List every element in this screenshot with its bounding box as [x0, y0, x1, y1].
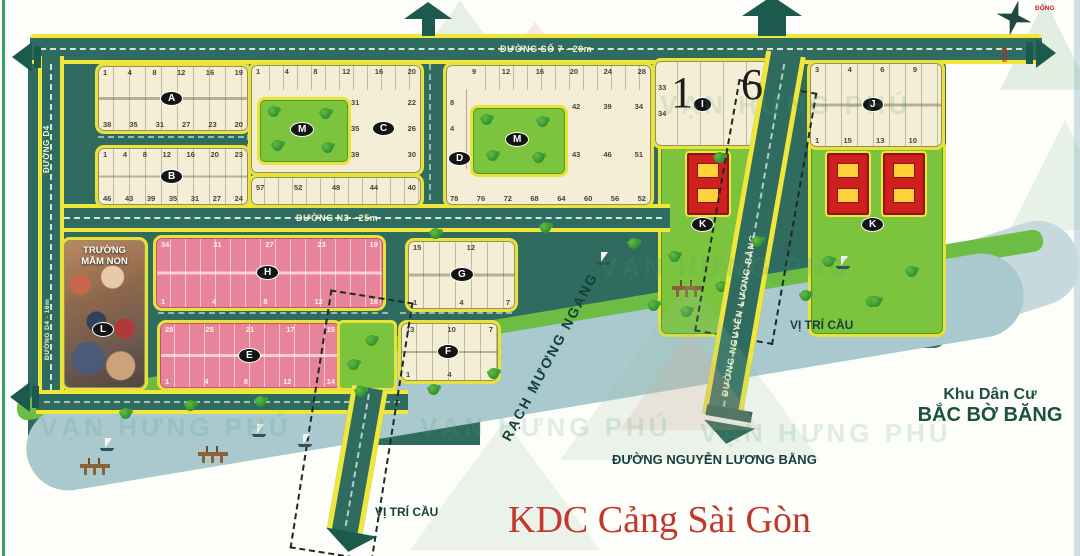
- plot-number: 4: [459, 299, 463, 307]
- plot-number: 12: [283, 378, 291, 386]
- tree-icon: [355, 386, 366, 397]
- plot-number: 31: [156, 121, 164, 129]
- plot-number: 22: [408, 99, 416, 107]
- block-m1-badge: M: [290, 122, 314, 137]
- plot-number: 16: [375, 68, 383, 76]
- master-plan-map: K K ĐƯỜNG SỐ 7 - 20m ĐƯỜNG N3 - 25m ĐƯỜN…: [0, 0, 1080, 556]
- plot-number: 16: [206, 69, 214, 77]
- plot-number: 8: [450, 99, 466, 107]
- plot-number: 27: [265, 241, 273, 249]
- block-c: 148121620 M 3122 35 C 26 3930: [248, 62, 424, 176]
- road-centerline: [429, 64, 431, 200]
- plot-number: 1: [406, 371, 410, 379]
- block-k2-area: K: [808, 138, 946, 337]
- plot-number: 4: [204, 378, 208, 386]
- plot-number: 19: [370, 241, 378, 249]
- plot-number: 8: [313, 68, 317, 76]
- block-a: 148121619 383531272320 A: [95, 63, 251, 134]
- plot-number: 23: [235, 151, 243, 159]
- plot-number: 6: [880, 66, 884, 74]
- sailboat-icon: [298, 434, 312, 448]
- watermark-text: VẠN HƯNG PHÚ: [420, 412, 672, 443]
- plot-number: 64: [557, 195, 565, 203]
- arrow-up-icon: [742, 0, 802, 16]
- plot-row: 1481214: [165, 378, 335, 386]
- watermark-text: VẠN HƯNG PHÚ: [40, 412, 292, 443]
- block-e-badge: E: [238, 348, 261, 363]
- tree-icon: [540, 222, 551, 233]
- pier-icon: [80, 464, 110, 468]
- plot-row: 147: [413, 299, 510, 307]
- plot-number: 20: [235, 121, 243, 129]
- plot-number: 39: [147, 195, 155, 203]
- plot-number: 10: [447, 326, 455, 334]
- plot-number: 46: [103, 195, 111, 203]
- block-m2-badge: M: [505, 132, 529, 147]
- road-so7-label: ĐƯỜNG SỐ 7 - 20m: [500, 44, 592, 54]
- road-centerline: [345, 394, 370, 526]
- plot-number: 25: [205, 326, 213, 334]
- plot-number: 20: [408, 68, 416, 76]
- tree-icon: [322, 142, 333, 153]
- block-b: 14812162023 46433935312724 B: [95, 145, 251, 208]
- page-edge-line: [2, 0, 5, 556]
- plot-number: 46: [603, 151, 611, 159]
- plot-number: 27: [182, 121, 190, 129]
- plot-number: 78: [450, 195, 458, 203]
- plot-row: 3431272319: [161, 241, 378, 249]
- plot-number: 72: [504, 195, 512, 203]
- block-a-badge: A: [160, 91, 183, 106]
- plot-number: 43: [125, 195, 133, 203]
- plot-number: 1: [161, 298, 165, 306]
- road-nlb-bottom-label: ĐƯỜNG NGUYỄN LƯƠNG BẰNG: [612, 452, 817, 467]
- plot-number: 31: [351, 99, 359, 107]
- plot-number: 34: [635, 103, 643, 111]
- plot-number: 8: [152, 69, 156, 77]
- plot-number: 12: [502, 68, 510, 76]
- plot-number: 16: [536, 68, 544, 76]
- arrow-bar: [1026, 42, 1033, 64]
- plot-number: 21: [246, 326, 254, 334]
- tree-icon: [320, 108, 331, 119]
- block-b-badge: B: [160, 169, 183, 184]
- block-d: 91216202428 841 D M 423934 434651 787672…: [443, 62, 654, 208]
- plot-number: 23: [317, 241, 325, 249]
- watermark-text: VẠN HƯNG PHÚ: [600, 252, 852, 283]
- block-l-badge: L: [92, 322, 114, 337]
- plot-number: 48: [332, 184, 340, 192]
- tree-icon: [430, 228, 441, 239]
- plot-number: 10: [909, 137, 917, 145]
- mountain-watermark: [1010, 120, 1080, 230]
- block-k1-badge: K: [691, 217, 714, 232]
- plot-row: 1512: [413, 244, 475, 252]
- plot-number: 1: [413, 299, 417, 307]
- plot-number: 39: [603, 103, 611, 111]
- block-c-strip: 5752484440: [248, 174, 424, 208]
- plot-number: 68: [530, 195, 538, 203]
- compass-east-label: ĐÔNG: [1035, 5, 1055, 12]
- plot-number: 4: [123, 151, 127, 159]
- park-m2: M: [470, 105, 568, 177]
- arrow-right-icon: [1036, 38, 1056, 68]
- plot-number: 38: [103, 121, 111, 129]
- road-n3: ĐƯỜNG N3 - 25m: [56, 204, 670, 232]
- road-centerline: [400, 312, 512, 314]
- plot-row: 14812162023: [103, 151, 243, 159]
- compass-south-label: NAM: [1002, 36, 1009, 62]
- plot-number: 12: [314, 298, 322, 306]
- plot-number: 8: [244, 378, 248, 386]
- plot-number: 24: [235, 195, 243, 203]
- plot-number: 35: [129, 121, 137, 129]
- block-h-badge: H: [256, 265, 279, 280]
- arrow-left-icon: [10, 382, 30, 412]
- arrow-bar: [32, 386, 39, 408]
- tree-icon: [714, 152, 725, 163]
- plot-number: 42: [572, 103, 580, 111]
- plot-number: 60: [584, 195, 592, 203]
- block-l-school: TRƯỜNG MẦM NON L: [61, 237, 148, 391]
- plot-number: 26: [408, 125, 416, 133]
- plot-number: 30: [408, 151, 416, 159]
- plot-number: 4: [212, 298, 216, 306]
- tree-icon: [481, 114, 492, 125]
- plot-number: 20: [570, 68, 578, 76]
- plot-number: 43: [572, 151, 580, 159]
- tree-icon: [487, 150, 498, 161]
- plot-number: 7: [506, 299, 510, 307]
- plot-number: 34: [161, 241, 169, 249]
- plot-number: 51: [635, 151, 643, 159]
- plot-number: 1: [256, 68, 260, 76]
- plot-row: 434651: [572, 151, 643, 159]
- tree-icon: [488, 368, 499, 379]
- road-centerline: [98, 136, 244, 138]
- plot-number: 17: [286, 326, 294, 334]
- plot-number: 44: [370, 184, 378, 192]
- block-g: 1512 147 G: [405, 238, 518, 312]
- plot-row: 148121620: [256, 65, 416, 90]
- plot-number: 40: [408, 184, 416, 192]
- plot-number: 19: [235, 69, 243, 77]
- plot-number: 12: [467, 244, 475, 252]
- plot-number: 12: [342, 68, 350, 76]
- plot-number: 27: [213, 195, 221, 203]
- tree-icon: [428, 384, 439, 395]
- school-label: TRƯỜNG MẦM NON: [64, 245, 145, 267]
- plot-row: 3122: [351, 99, 416, 107]
- plot-number: 23: [208, 121, 216, 129]
- road-n3-label: ĐƯỜNG N3 - 25m: [296, 213, 378, 223]
- building-window: [697, 188, 719, 203]
- tree-icon: [255, 396, 266, 407]
- plot-number: 12: [177, 69, 185, 77]
- pier-icon: [198, 452, 228, 456]
- road-d4-16-label: ĐƯỜNG D4 - 16m: [44, 240, 51, 360]
- plot-number: 56: [611, 195, 619, 203]
- neighbor-area-label: Khu Dân Cư BẮC BỜ BĂNG: [900, 386, 1080, 427]
- plot-number: 8: [143, 151, 147, 159]
- plot-row: 2825211715: [165, 326, 335, 334]
- apartment-building: [883, 153, 925, 215]
- plot-number: 9: [913, 66, 917, 74]
- plot-number: 12: [163, 151, 171, 159]
- block-f: 13107 146 F: [398, 320, 501, 384]
- building-window: [697, 163, 719, 178]
- watermark-text: VẠN HƯNG PHÚ: [660, 90, 912, 121]
- plot-number: 24: [604, 68, 612, 76]
- plot-number: 4: [285, 68, 289, 76]
- plot-number: 15: [843, 137, 851, 145]
- plot-number: 35: [351, 125, 359, 133]
- bridge-label-left: VỊ TRÍ CẦU: [375, 505, 438, 519]
- tree-icon: [268, 106, 279, 117]
- plot-row: 13107: [406, 326, 493, 334]
- plot-number: 7: [489, 326, 493, 334]
- plot-number: 4: [128, 69, 132, 77]
- plot-row: 35 C 26: [351, 121, 416, 136]
- map-title: KDC Cảng Sài Gòn: [508, 498, 811, 542]
- block-d-badge: D: [448, 151, 471, 166]
- plot-number: 4: [450, 125, 466, 133]
- plot-row: 148121619: [103, 69, 243, 77]
- plot-row: 3930: [351, 151, 416, 159]
- plot-number: 28: [638, 68, 646, 76]
- block-g-badge: G: [450, 267, 474, 282]
- building-window: [893, 163, 915, 178]
- block-f-badge: F: [437, 344, 459, 359]
- plot-number: 1: [103, 69, 107, 77]
- plot-number: 1: [165, 378, 169, 386]
- plot-row: 146: [406, 371, 493, 379]
- plot-number: 16: [187, 151, 195, 159]
- tree-icon: [185, 400, 196, 411]
- plot-number: 4: [848, 66, 852, 74]
- plot-number: 13: [876, 137, 884, 145]
- building-window: [893, 188, 915, 203]
- plot-number: 28: [165, 326, 173, 334]
- park-m1: M: [257, 97, 351, 165]
- plot-row: 7876726864605652: [450, 195, 646, 203]
- tree-icon: [533, 152, 544, 163]
- plot-number: 1: [815, 137, 819, 145]
- arrow-up-icon: [404, 2, 452, 19]
- plot-row: 46433935312724: [103, 195, 243, 203]
- plot-number: 52: [638, 195, 646, 203]
- road-d4-label: ĐƯỜNG D4: [42, 78, 51, 173]
- plot-number: 1: [103, 151, 107, 159]
- tree-icon: [628, 238, 639, 249]
- arrow-left-icon: [12, 42, 32, 72]
- plot-row: 3469: [815, 66, 917, 74]
- plot-row: 1151310: [815, 137, 917, 145]
- plot-row: 5752484440: [256, 184, 416, 192]
- tree-icon: [906, 266, 917, 277]
- plot-number: 39: [351, 151, 359, 159]
- bridge-label-right: VỊ TRÍ CẦU: [790, 318, 853, 332]
- arrow-bar: [34, 46, 41, 68]
- plot-number: 52: [294, 184, 302, 192]
- plot-number: 3: [815, 66, 819, 74]
- plot-row: 423934: [572, 103, 643, 111]
- apartment-building: [827, 153, 869, 215]
- plot-number: 76: [477, 195, 485, 203]
- plot-number: 8: [263, 298, 267, 306]
- tree-icon: [870, 296, 881, 307]
- block-c-badge: C: [372, 121, 395, 136]
- building-window: [837, 163, 859, 178]
- block-k2-badge: K: [861, 217, 884, 232]
- arrow-stem: [422, 18, 435, 36]
- plot-row: 383531272320: [103, 121, 243, 129]
- building-window: [837, 188, 859, 203]
- plot-row: 91216202428: [472, 65, 646, 90]
- plot-number: 35: [169, 195, 177, 203]
- tree-icon: [752, 236, 763, 247]
- plot-number: 57: [256, 184, 264, 192]
- plot-number: 15: [413, 244, 421, 252]
- plot-number: 31: [191, 195, 199, 203]
- plot-number: 20: [211, 151, 219, 159]
- plot-number: 9: [472, 68, 476, 76]
- tree-icon: [272, 140, 283, 151]
- plot-number: 31: [213, 241, 221, 249]
- tree-icon: [537, 116, 548, 127]
- plot-number: 4: [447, 371, 451, 379]
